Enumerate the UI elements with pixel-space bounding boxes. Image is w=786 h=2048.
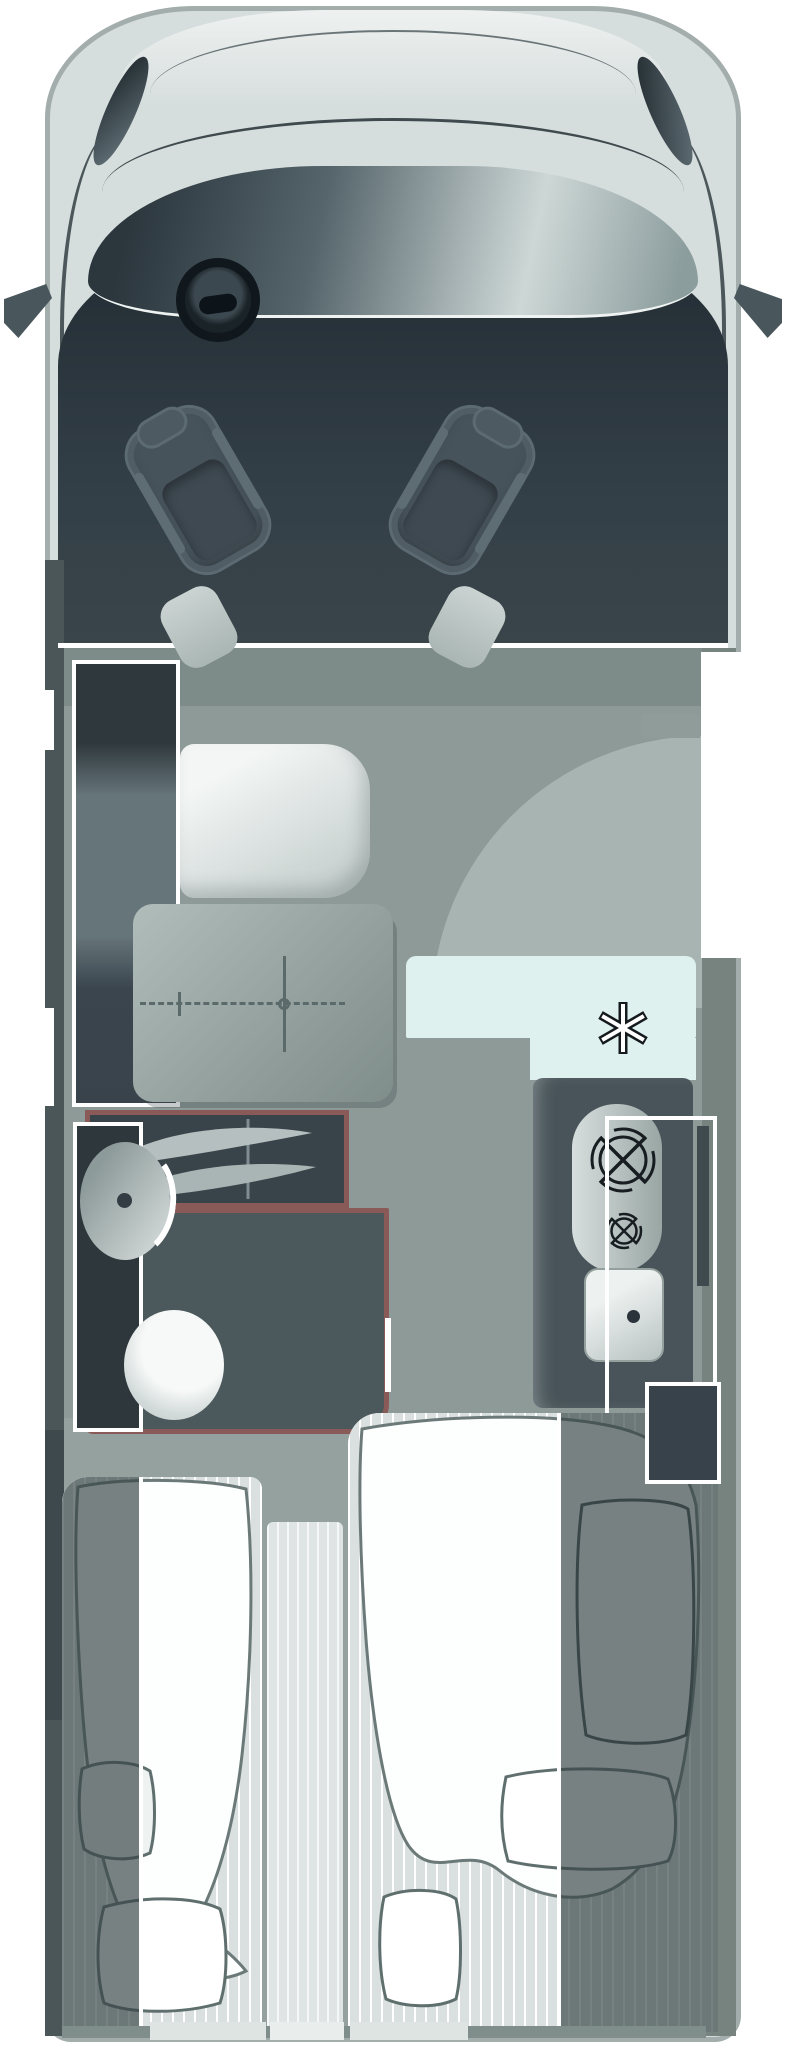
bed-end-board — [350, 2022, 468, 2040]
cab-partition-line — [58, 643, 728, 648]
table-mount-tick — [178, 992, 181, 1016]
kitchen-side-wall — [697, 1126, 709, 1286]
snowflake-icon — [594, 996, 652, 1060]
steering-wheel-icon — [176, 258, 260, 342]
left-window-cutout — [45, 1008, 54, 1106]
bed-divider-line — [139, 1477, 143, 2030]
left-window-cutout — [45, 690, 54, 750]
wing-mirror-right-icon — [734, 284, 782, 338]
washroom-door-gap — [385, 1318, 391, 1392]
single-bed-right — [348, 1413, 718, 2032]
washbasin-drain-icon — [117, 1193, 132, 1208]
toilet — [124, 1310, 224, 1420]
single-bed-left — [62, 1477, 262, 2030]
table-mount-dashed-line — [140, 1002, 345, 1005]
entry-door-opening — [701, 652, 741, 958]
bed-shaded-half — [62, 1477, 142, 2030]
center-step — [267, 1522, 343, 2036]
dinette-bench — [180, 744, 370, 898]
bed-shaded-half — [560, 1413, 718, 2032]
floorplan-stage — [0, 0, 786, 2048]
table-mount-ring — [278, 998, 290, 1010]
refrigerator — [406, 956, 696, 1038]
entry-step — [642, 714, 700, 738]
bed-end-board — [150, 2022, 266, 2040]
rear-wardrobe — [645, 1382, 721, 1484]
bed-divider-line — [557, 1413, 561, 2032]
step-end-board — [270, 2022, 344, 2040]
